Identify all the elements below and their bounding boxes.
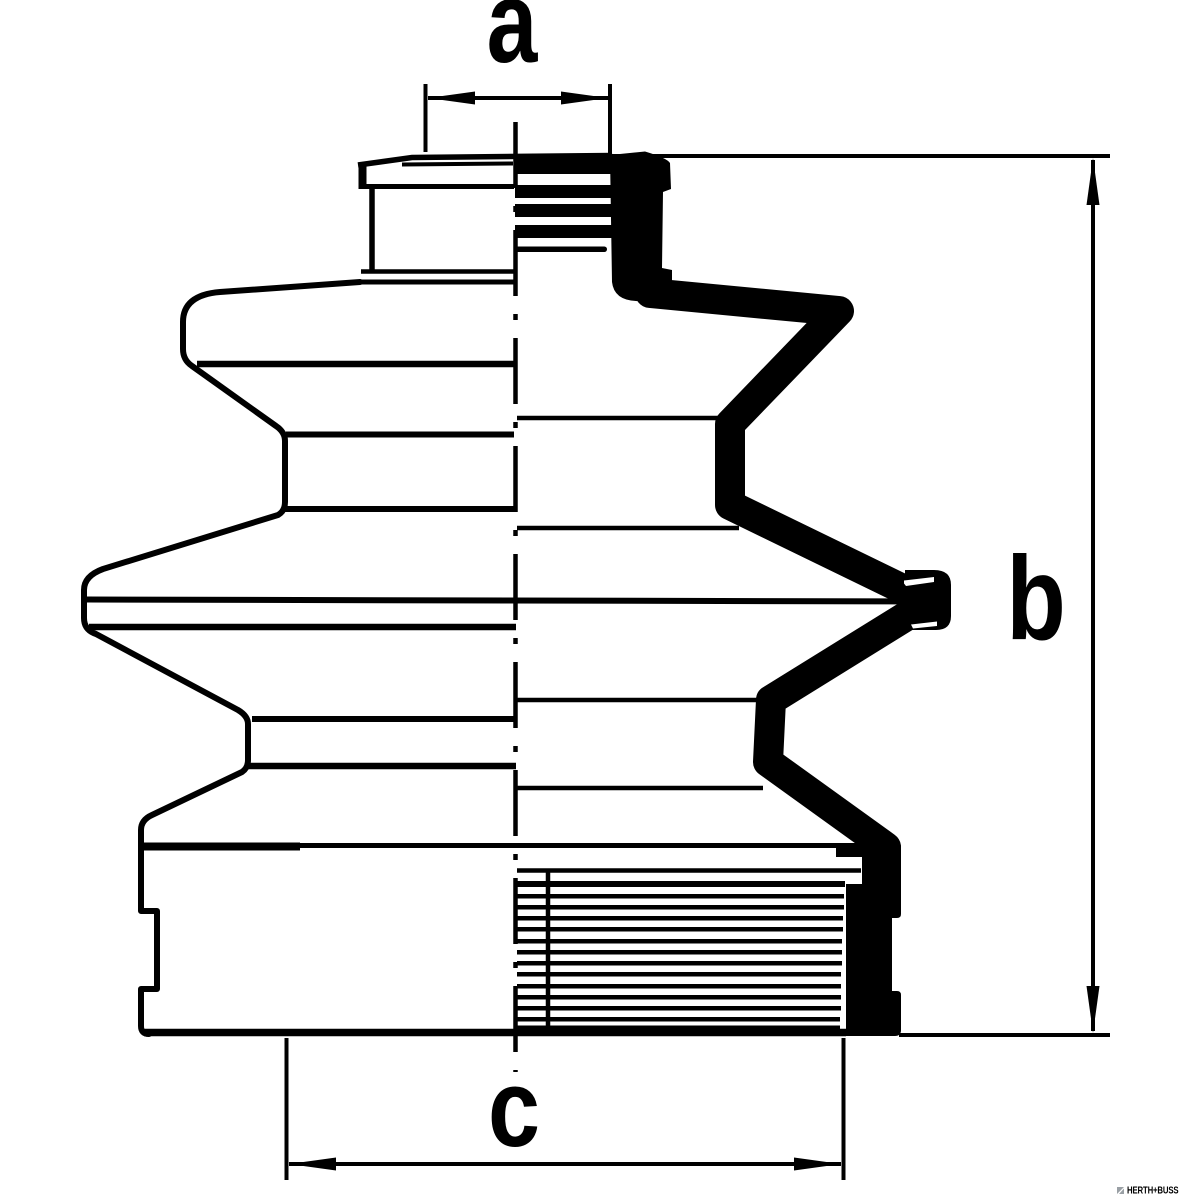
svg-text:b: b [1006,532,1066,665]
svg-text:c: c [488,1047,540,1170]
svg-text:HERTH+BUSS: HERTH+BUSS [1127,1185,1179,1196]
svg-text:a: a [487,0,539,88]
